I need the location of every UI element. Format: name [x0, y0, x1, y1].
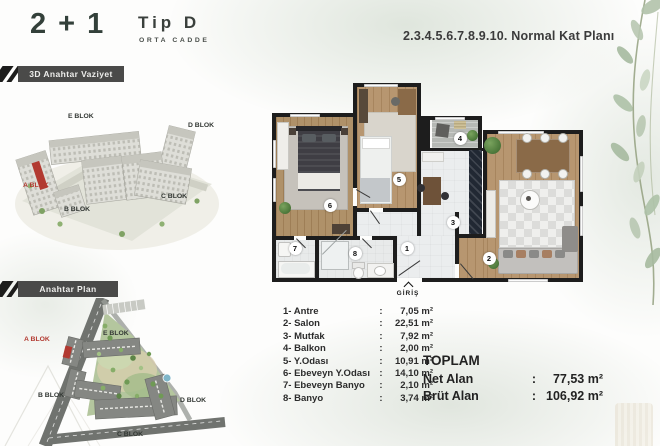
sink — [374, 266, 386, 276]
separator: : — [377, 306, 385, 318]
pillow — [542, 250, 552, 258]
room-circle-5: 5 — [393, 173, 406, 186]
dining-chair — [558, 169, 568, 179]
entrance-label: GİRİŞ — [388, 290, 428, 297]
siteplan-graphic — [15, 298, 230, 446]
block-label-c: C BLOK — [161, 193, 187, 200]
room-name: 3- Mutfak — [283, 331, 377, 343]
room-circle-8: 8 — [349, 247, 362, 260]
room-circle-1: 1 — [401, 242, 414, 255]
wall — [357, 208, 369, 212]
room-circle-6: 6 — [324, 199, 337, 212]
room-circle-4: 4 — [454, 132, 467, 145]
dining-chair — [522, 169, 532, 179]
brochure-page: 2 + 1 Tip D ORTA CADDE 2.3.4.5.6.7.8.9.1… — [0, 0, 660, 446]
block-label-e: E BLOK — [103, 330, 129, 337]
bed-blanket — [360, 178, 390, 202]
separator: : — [529, 388, 539, 405]
totals-title: TOPLAM — [423, 353, 603, 368]
pillow — [516, 250, 526, 258]
kitchen-table — [423, 177, 441, 205]
kitchen-counter — [422, 152, 444, 162]
window — [290, 114, 320, 117]
pillow — [503, 250, 513, 258]
plant — [484, 137, 501, 154]
dining-chair — [540, 169, 550, 179]
room-name: 7- Ebeveyn Banyo — [283, 380, 377, 392]
toilet-bowl — [353, 267, 364, 279]
wall — [459, 234, 483, 238]
bathtub-basin — [281, 263, 310, 274]
kitchen-chair — [441, 192, 449, 200]
room-name: 2- Salon — [283, 318, 377, 330]
separator: : — [529, 371, 539, 388]
block-label-d: D BLOK — [188, 122, 214, 129]
sofa-corner — [562, 226, 578, 252]
section-badge-3d-view: 3D Anahtar Vaziyet — [18, 66, 124, 82]
room-list: 1- Antre:7,05 m² 2- Salon:22,51 m² 3- Mu… — [283, 306, 433, 405]
block-label-e: E BLOK — [68, 113, 94, 120]
net-area-label: Net Alan — [423, 371, 529, 388]
vanity — [277, 122, 289, 170]
nightstand — [341, 128, 348, 135]
mat — [454, 121, 466, 129]
room-name: 4- Balkon — [283, 343, 377, 355]
sideboard — [486, 190, 496, 238]
window — [508, 279, 548, 282]
separator: : — [377, 343, 385, 355]
separator: : — [377, 393, 385, 405]
room-row: 3- Mutfak:7,92 m² — [283, 331, 433, 343]
room-circle-2: 2 — [483, 252, 496, 265]
nightstand — [289, 128, 296, 135]
room-name: 8- Banyo — [283, 393, 377, 405]
wall — [315, 236, 319, 282]
net-area-value: 77,53 m² — [539, 371, 603, 388]
wall — [383, 208, 417, 212]
wall — [272, 278, 397, 282]
room-name: 6- Ebeveyn Y.Odası — [283, 368, 377, 380]
pillow — [302, 134, 316, 142]
room-row: 7- Ebeveyn Banyo:2,10 m² — [283, 380, 433, 392]
type-name-label: Tip D — [138, 13, 200, 33]
gross-area-row: Brüt Alan : 106,92 m² — [423, 388, 603, 405]
separator: : — [377, 380, 385, 392]
shower — [321, 241, 349, 270]
separator: : — [377, 331, 385, 343]
window — [364, 84, 398, 87]
room-row: 6- Ebeveyn Y.Odası:14,10 m² — [283, 368, 433, 380]
wall — [417, 212, 421, 236]
bed-throw — [298, 173, 340, 189]
dining-table — [516, 139, 570, 173]
window — [273, 178, 276, 202]
block-label-b: B BLOK — [38, 392, 64, 399]
render-3d-keyview: E BLOK D BLOK A BLOK C BLOK B BLOK — [12, 106, 222, 254]
room-row: 8- Banyo:3,74 m² — [283, 393, 433, 405]
plant — [279, 202, 291, 214]
totals-block: TOPLAM Net Alan : 77,53 m² Brüt Alan : 1… — [423, 353, 603, 404]
room-circle-3: 3 — [447, 216, 460, 229]
lounge-chair — [435, 123, 450, 138]
desk — [398, 89, 416, 115]
pillow — [555, 250, 565, 258]
pillow — [529, 250, 539, 258]
block-label-a: A BLOK — [24, 336, 50, 343]
wall — [422, 278, 583, 282]
plant — [467, 130, 478, 141]
siteplan-keymap: A BLOK E BLOK B BLOK D BLOK C BLOK — [15, 298, 230, 446]
window — [498, 131, 544, 134]
section-badge-siteplan: Anahtar Plan — [18, 281, 118, 297]
dining-chair — [522, 133, 532, 143]
dining-chair — [540, 133, 550, 143]
unit-type-label: 2 + 1 — [30, 8, 105, 41]
wall — [478, 116, 482, 150]
block-label-c: C BLOK — [117, 431, 143, 438]
net-area-row: Net Alan : 77,53 m² — [423, 371, 603, 388]
window — [580, 156, 583, 192]
room-row: 2- Salon:22,51 m² — [283, 318, 433, 330]
dresser — [332, 224, 350, 234]
decor — [526, 196, 531, 201]
window — [580, 206, 583, 236]
window — [273, 140, 276, 168]
wardrobe — [359, 89, 368, 123]
fridge-cabinet-wall — [469, 150, 482, 234]
room-row: 5- Y.Odası:10,91 m² — [283, 356, 433, 368]
room-circle-7: 7 — [289, 242, 302, 255]
window — [435, 117, 465, 120]
kitchen-chair — [417, 184, 425, 192]
room-name: 5- Y.Odası — [283, 356, 377, 368]
gross-area-value: 106,92 m² — [539, 388, 603, 405]
separator: : — [377, 356, 385, 368]
street-label: ORTA CADDE — [139, 37, 210, 44]
room-name: 1- Antre — [283, 306, 377, 318]
wall — [272, 236, 294, 240]
block-label-d: D BLOK — [180, 397, 206, 404]
floorplan: 1 2 3 4 5 6 7 8 GİRİŞ — [272, 78, 585, 304]
separator: : — [377, 368, 385, 380]
pillow — [362, 138, 390, 149]
room-area: 7,92 m² — [385, 331, 433, 343]
block-label-a: A BLOK — [23, 182, 49, 189]
room-area: 22,51 m² — [385, 318, 433, 330]
dining-chair — [558, 133, 568, 143]
hall-floor — [357, 212, 417, 236]
pillow — [322, 134, 336, 142]
room-row: 1- Antre:7,05 m² — [283, 306, 433, 318]
wall — [417, 87, 421, 212]
block-label-b: B BLOK — [64, 206, 90, 213]
room-row: 4- Balkon:2,00 m² — [283, 343, 433, 355]
desk-chair — [391, 97, 400, 106]
room-area: 7,05 m² — [385, 306, 433, 318]
wall — [353, 87, 357, 188]
floor-plan-title: 2.3.4.5.6.7.8.9.10. Normal Kat Planı — [403, 29, 614, 43]
gross-area-label: Brüt Alan — [423, 388, 529, 405]
separator: : — [377, 318, 385, 330]
building-sketch-decoration — [615, 403, 653, 446]
